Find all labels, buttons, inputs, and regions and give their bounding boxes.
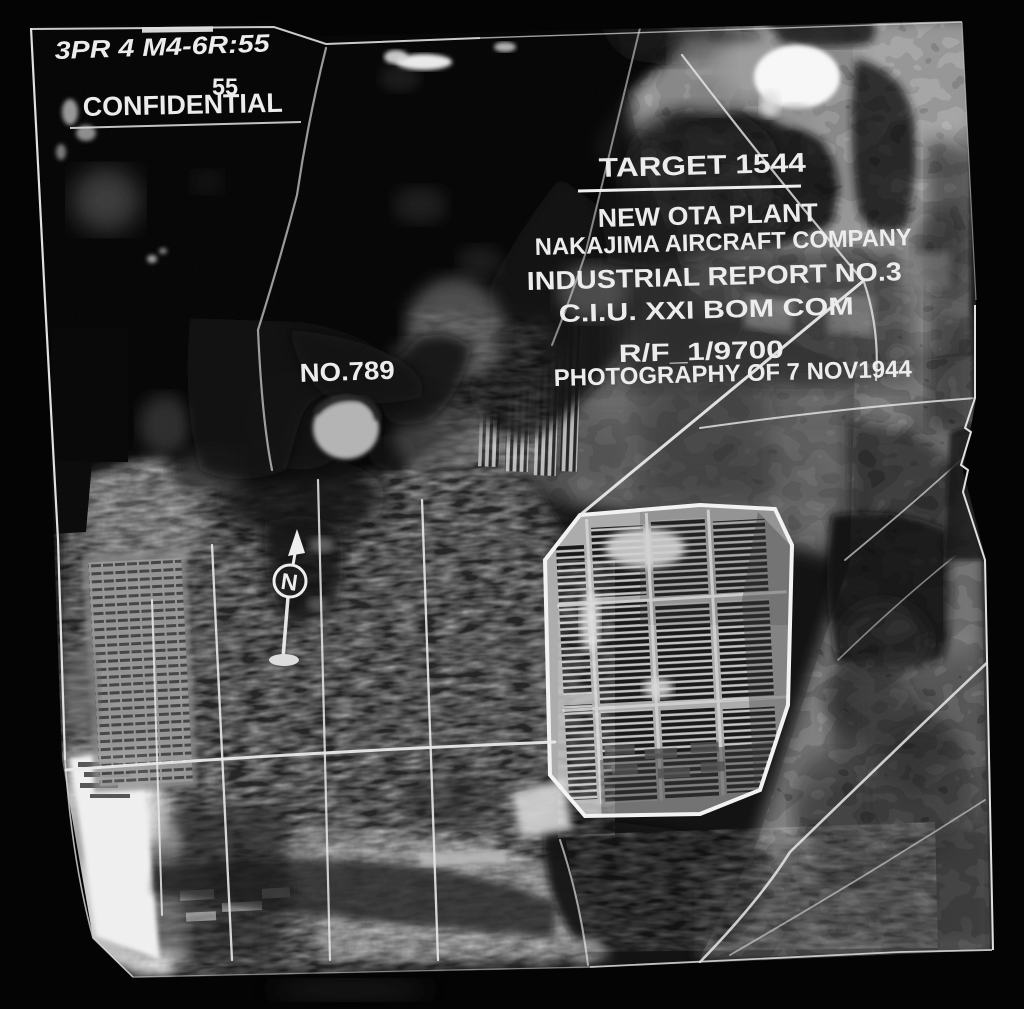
svg-text:CONFIDENTIAL: CONFIDENTIAL [82,88,283,122]
svg-text:NO.789: NO.789 [299,355,395,388]
svg-text:TARGET 1544: TARGET 1544 [598,148,806,183]
